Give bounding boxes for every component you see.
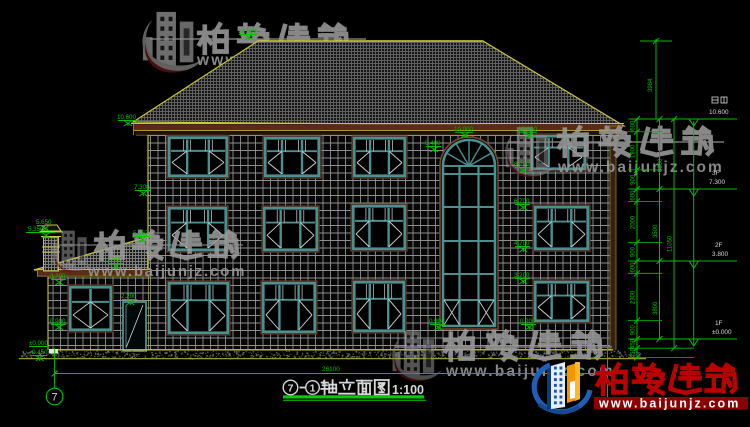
svg-text:600: 600 — [631, 120, 637, 131]
svg-text:6.700: 6.700 — [514, 198, 530, 205]
svg-text:10.600: 10.600 — [117, 114, 136, 121]
svg-text:1: 1 — [310, 383, 316, 395]
svg-text:7.300: 7.300 — [134, 184, 150, 191]
svg-text:2.200: 2.200 — [121, 293, 137, 300]
svg-text:7.300: 7.300 — [709, 179, 725, 186]
svg-text:www.baijunjz.com: www.baijunjz.com — [445, 363, 615, 380]
svg-text:1F: 1F — [715, 320, 723, 327]
svg-text:www.baijunjz.com: www.baijunjz.com — [87, 263, 246, 280]
svg-text:5.650: 5.650 — [36, 219, 52, 226]
svg-text:3800: 3800 — [653, 301, 659, 315]
svg-text:3500: 3500 — [653, 224, 659, 238]
svg-text:3.200: 3.200 — [50, 273, 66, 280]
svg-text:2000: 2000 — [631, 215, 637, 229]
svg-text:±0.000: ±0.000 — [712, 329, 732, 336]
svg-text:0.900: 0.900 — [520, 318, 536, 325]
svg-text:10.600: 10.600 — [709, 109, 729, 116]
svg-text:2F: 2F — [715, 242, 723, 249]
svg-text:9.400: 9.400 — [425, 140, 441, 147]
svg-text:3F: 3F — [712, 170, 720, 177]
svg-text:1800: 1800 — [631, 144, 637, 158]
svg-text:5.167: 5.167 — [133, 230, 149, 237]
svg-text:11050: 11050 — [668, 235, 674, 252]
svg-text:0.900: 0.900 — [429, 318, 445, 325]
svg-text:900: 900 — [631, 324, 637, 335]
svg-text:450: 450 — [631, 348, 637, 359]
svg-text:2300: 2300 — [631, 290, 637, 304]
svg-text:±0.000: ±0.000 — [29, 340, 48, 347]
svg-text:0.900: 0.900 — [50, 318, 66, 325]
svg-text:3.800: 3.800 — [712, 251, 728, 258]
svg-text:3300: 3300 — [658, 158, 664, 172]
svg-text:900: 900 — [631, 246, 637, 257]
svg-text:450: 450 — [631, 338, 637, 349]
svg-text:600: 600 — [631, 262, 637, 273]
svg-text:www.baijunjz.com: www.baijunjz.com — [598, 397, 740, 411]
svg-text:3.300: 3.300 — [107, 257, 123, 264]
svg-text:4.700: 4.700 — [514, 240, 530, 247]
svg-text:-0.450: -0.450 — [30, 349, 48, 356]
svg-text:26100: 26100 — [322, 366, 340, 373]
svg-text:www.baijunjz.com: www.baijunjz.com — [557, 159, 724, 176]
svg-text:900: 900 — [631, 174, 637, 185]
svg-text:600: 600 — [631, 190, 637, 201]
svg-text:1:100: 1:100 — [392, 383, 424, 397]
svg-text:3984: 3984 — [648, 78, 654, 92]
svg-text:8.200: 8.200 — [514, 161, 530, 168]
svg-text:5.350: 5.350 — [28, 226, 44, 233]
svg-text:14.564: 14.564 — [238, 28, 257, 35]
svg-text:3.200: 3.200 — [514, 272, 530, 279]
svg-text:7: 7 — [288, 383, 294, 395]
svg-text:7: 7 — [52, 392, 58, 404]
